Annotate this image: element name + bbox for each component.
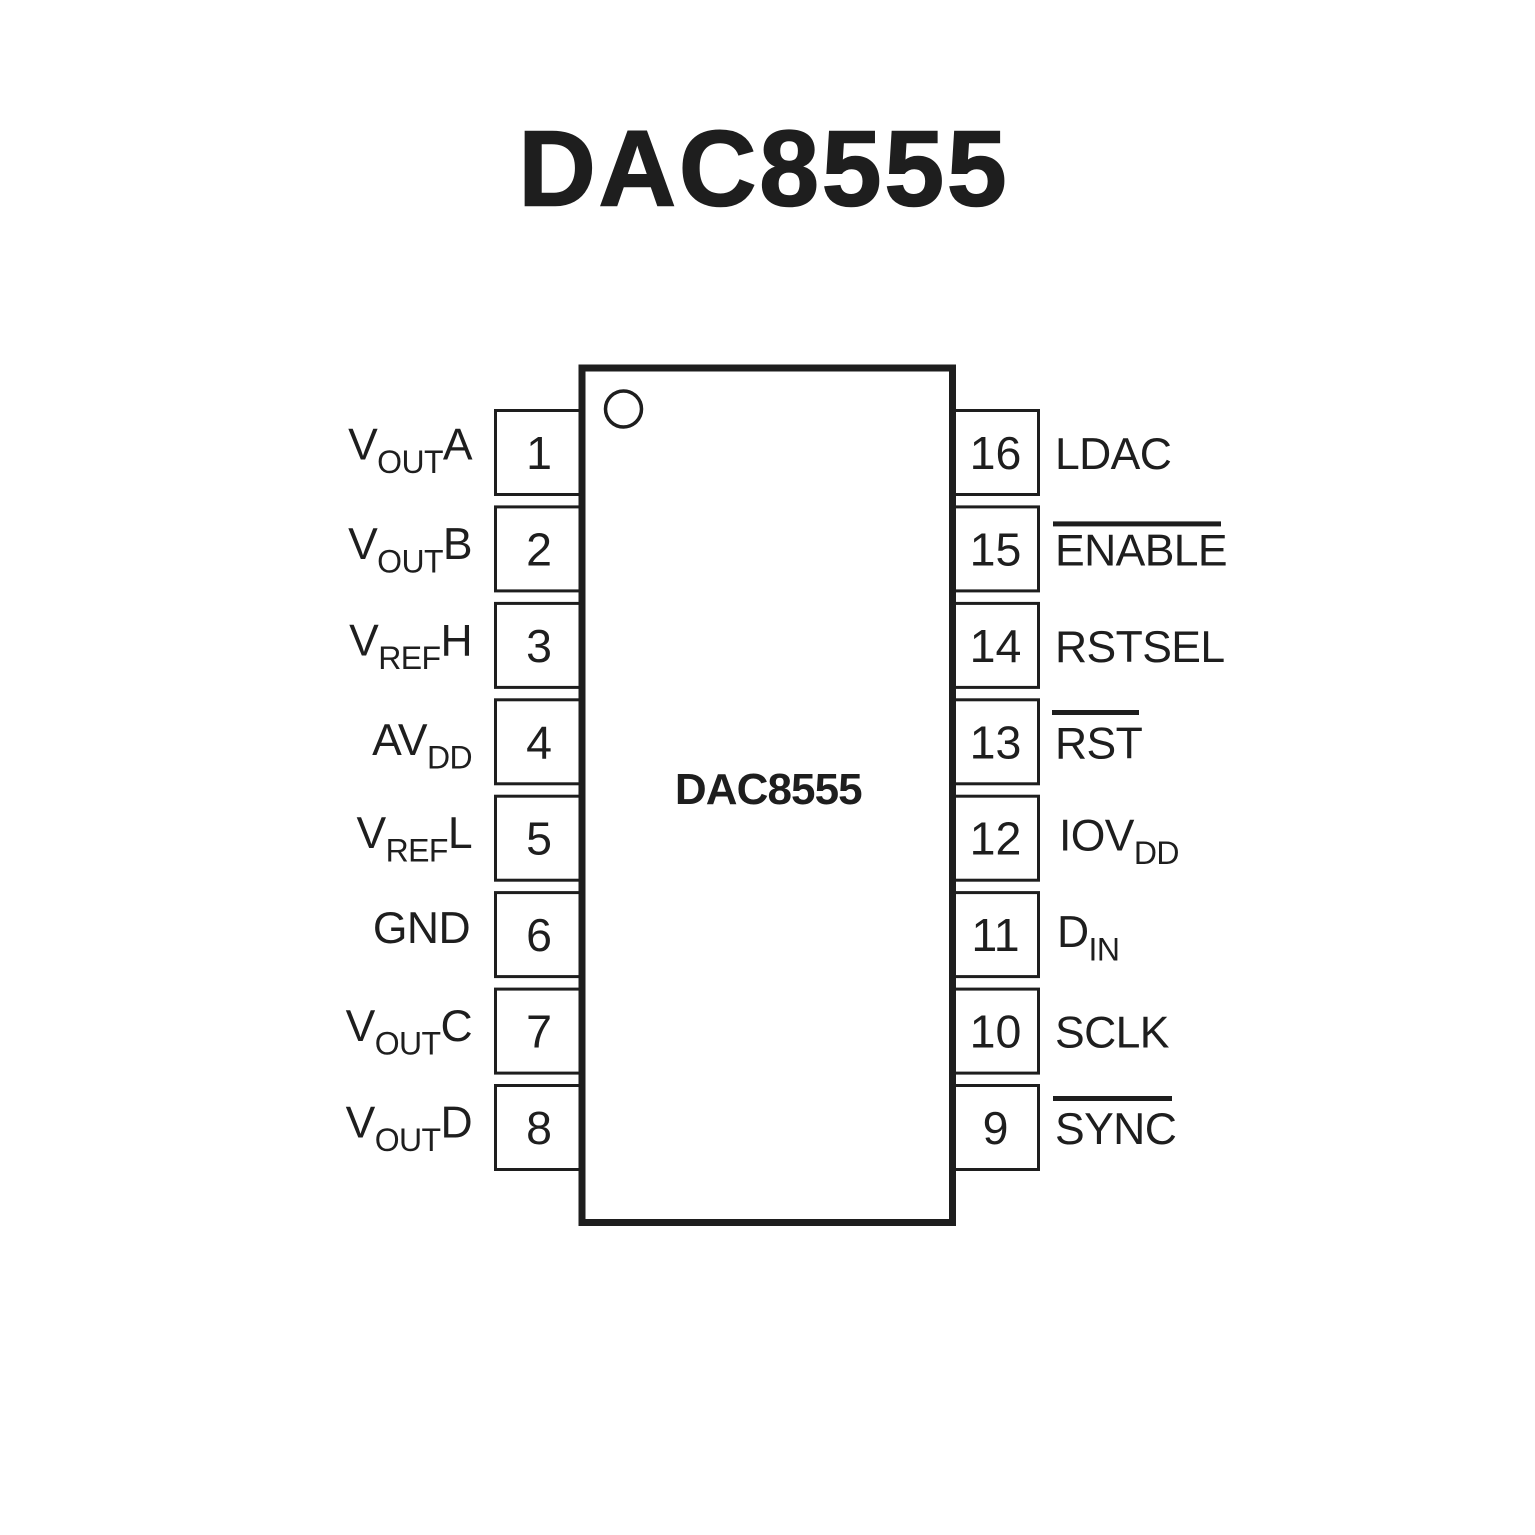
svg-text:GND: GND bbox=[373, 904, 470, 953]
svg-text:7: 7 bbox=[526, 1006, 552, 1058]
svg-text:3: 3 bbox=[526, 620, 552, 672]
svg-text:13: 13 bbox=[970, 716, 1022, 768]
svg-text:DAC8555: DAC8555 bbox=[675, 765, 862, 814]
svg-text:6: 6 bbox=[526, 909, 552, 961]
svg-text:11: 11 bbox=[971, 909, 1019, 961]
svg-text:SCLK: SCLK bbox=[1055, 1009, 1170, 1058]
svg-text:2: 2 bbox=[526, 523, 552, 575]
svg-text:15: 15 bbox=[970, 523, 1022, 575]
svg-text:LDAC: LDAC bbox=[1055, 430, 1171, 479]
svg-text:RST: RST bbox=[1055, 719, 1143, 768]
svg-text:16: 16 bbox=[970, 427, 1022, 479]
svg-text:12: 12 bbox=[970, 813, 1022, 865]
svg-text:DAC8555: DAC8555 bbox=[518, 109, 1009, 229]
svg-text:SYNC: SYNC bbox=[1055, 1105, 1176, 1154]
svg-text:5: 5 bbox=[526, 813, 552, 865]
svg-text:1: 1 bbox=[526, 427, 552, 479]
svg-text:8: 8 bbox=[526, 1102, 552, 1154]
svg-text:10: 10 bbox=[970, 1006, 1022, 1058]
svg-text:RSTSEL: RSTSEL bbox=[1055, 623, 1225, 672]
svg-text:ENABLE: ENABLE bbox=[1055, 526, 1227, 575]
svg-text:4: 4 bbox=[526, 716, 552, 768]
svg-text:14: 14 bbox=[970, 620, 1022, 672]
svg-text:9: 9 bbox=[983, 1102, 1009, 1154]
